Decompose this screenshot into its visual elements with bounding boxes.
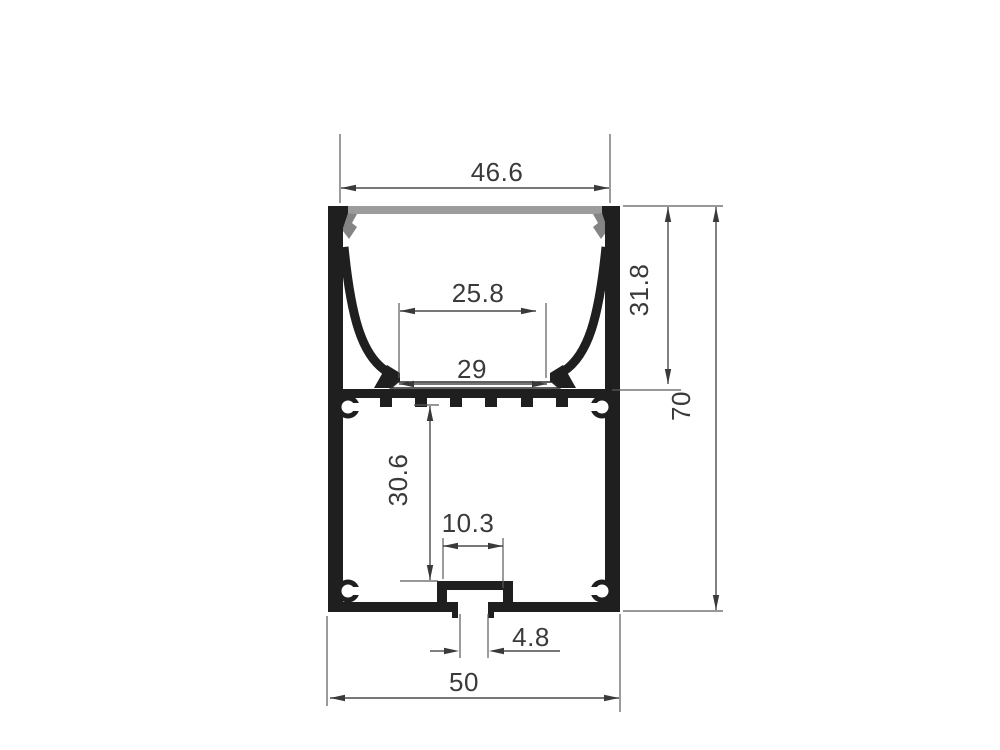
tooth (380, 398, 392, 407)
screw-boss-bottom-left (339, 582, 362, 600)
slot-lip-right (488, 611, 494, 618)
dimension-label: 50 (449, 667, 479, 697)
profile-drawing: 46.6 25.8 29 31.8 (0, 0, 1000, 750)
arrowhead (665, 207, 671, 222)
tooth (556, 398, 568, 407)
arrowhead (604, 695, 619, 701)
dimension-label: 25.8 (452, 278, 505, 308)
arrowhead (489, 648, 504, 654)
arrowhead (444, 648, 459, 654)
dimension-slot-opening: 4.8 (430, 614, 560, 658)
dimension-label: 30.6 (383, 454, 413, 507)
dimension-lower-cavity: 30.6 (383, 405, 439, 581)
arrowhead (521, 308, 536, 314)
arrowhead (427, 406, 433, 421)
boss-side-left (437, 581, 447, 603)
arrowhead (594, 185, 609, 191)
arrowhead (341, 185, 356, 191)
tooth (450, 398, 462, 407)
arrowhead (330, 695, 345, 701)
divider-teeth (380, 398, 568, 407)
dimension-label: 70 (666, 391, 696, 421)
dimension-label: 46.6 (471, 157, 524, 187)
dimension-upper-cavity: 31.8 (612, 206, 723, 390)
dimensions: 46.6 25.8 29 31.8 (327, 134, 723, 712)
dimension-top-opening: 46.6 (340, 134, 610, 203)
dimension-slot-inner: 10.3 (442, 508, 503, 588)
arrowhead (427, 565, 433, 580)
arrowhead (713, 207, 719, 222)
bottom-plate-right (488, 602, 620, 612)
screw-boss-bottom-right (588, 582, 611, 600)
tooth (415, 398, 427, 407)
screw-boss-top-right (588, 398, 611, 416)
divider-plate (343, 389, 607, 398)
reflector-curve-right (564, 247, 606, 371)
tooth (521, 398, 533, 407)
arrowhead (400, 308, 415, 314)
arrowhead (665, 369, 671, 384)
arrowhead (488, 543, 503, 549)
dimension-label: 4.8 (512, 622, 550, 652)
dimension-label: 29 (457, 354, 487, 384)
dimension-label: 10.3 (442, 508, 495, 538)
slot-lip-left (452, 611, 458, 618)
dimension-label: 31.8 (624, 264, 654, 317)
technical-drawing-canvas: 46.6 25.8 29 31.8 (0, 0, 1000, 750)
diffuser-bar (336, 206, 604, 214)
screw-slot-boss (437, 581, 513, 603)
screw-boss-top-left (339, 398, 362, 416)
tooth (485, 398, 497, 407)
profile-cross-section (328, 206, 620, 618)
arrowhead (443, 543, 458, 549)
arrowhead (713, 595, 719, 610)
bottom-plate-left (328, 602, 458, 612)
boss-side-right (503, 581, 513, 603)
dimension-overall-width: 50 (327, 614, 620, 712)
reflector-curve-left (344, 247, 386, 371)
boss-top-bar (437, 581, 513, 590)
